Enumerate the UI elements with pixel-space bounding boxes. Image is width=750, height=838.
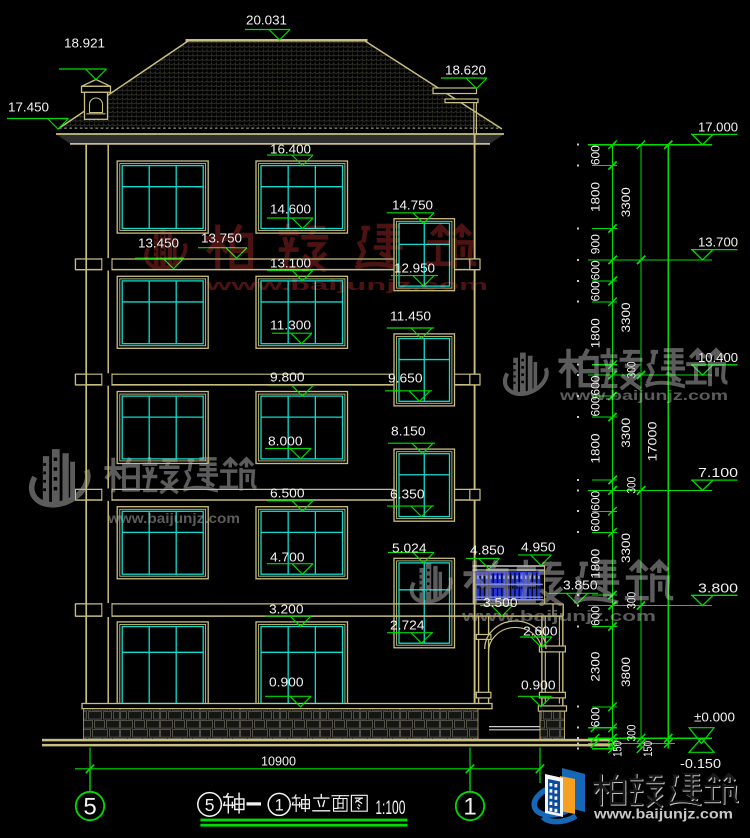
svg-text:5: 5	[205, 795, 215, 815]
svg-text:3300: 3300	[621, 187, 633, 217]
svg-text:5: 5	[83, 794, 96, 821]
svg-text:600: 600	[591, 260, 603, 280]
svg-text:600: 600	[591, 707, 603, 727]
svg-text:8.000: 8.000	[268, 434, 303, 449]
svg-text:10900: 10900	[261, 754, 296, 769]
svg-text:1:100: 1:100	[375, 798, 405, 819]
svg-text:18.921: 18.921	[64, 36, 105, 51]
svg-text:4.850: 4.850	[470, 543, 505, 558]
svg-text:9.650: 9.650	[388, 371, 423, 386]
svg-text:3300: 3300	[621, 303, 633, 333]
svg-text:600: 600	[591, 491, 603, 511]
svg-text:1: 1	[463, 794, 476, 821]
svg-text:www.baijunjz.com: www.baijunjz.com	[559, 387, 728, 403]
svg-text:0.900: 0.900	[521, 678, 556, 693]
svg-text:-0.150: -0.150	[680, 756, 721, 771]
svg-text:300: 300	[627, 725, 639, 742]
svg-text:13.700: 13.700	[698, 235, 738, 250]
svg-text:3800: 3800	[621, 657, 633, 687]
svg-text:1800: 1800	[591, 433, 603, 463]
svg-text:11.300: 11.300	[270, 318, 311, 333]
svg-text:www.baijunjz.com: www.baijunjz.com	[107, 510, 240, 526]
svg-text:0.900: 0.900	[269, 675, 304, 690]
svg-text:14.750: 14.750	[392, 198, 433, 213]
svg-text:±0.000: ±0.000	[694, 710, 735, 725]
svg-text:6.500: 6.500	[270, 486, 305, 501]
svg-text:7.100: 7.100	[698, 465, 738, 480]
svg-text:3300: 3300	[621, 418, 633, 448]
svg-text:2.724: 2.724	[390, 618, 425, 633]
svg-text:13.450: 13.450	[138, 236, 179, 251]
svg-text:14.600: 14.600	[270, 202, 311, 217]
svg-text:3.200: 3.200	[269, 602, 304, 617]
svg-text:17.000: 17.000	[698, 119, 738, 134]
svg-text:www.baijunjz.com: www.baijunjz.com	[204, 278, 488, 294]
svg-text:150: 150	[643, 741, 655, 757]
svg-text:4.700: 4.700	[270, 550, 305, 565]
svg-text:17.450: 17.450	[8, 100, 49, 115]
svg-text:www.baijunjz.com: www.baijunjz.com	[461, 608, 656, 625]
svg-text:150: 150	[613, 741, 625, 757]
svg-text:8.150: 8.150	[391, 424, 426, 439]
svg-text:2300: 2300	[591, 652, 603, 682]
svg-text:17000: 17000	[648, 422, 660, 462]
svg-text:1: 1	[275, 797, 284, 815]
svg-text:www.baijunjz.com: www.baijunjz.com	[593, 807, 733, 822]
svg-text:4.950: 4.950	[521, 540, 556, 555]
svg-text:300: 300	[627, 477, 639, 494]
svg-text:1800: 1800	[591, 182, 603, 212]
svg-text:600: 600	[591, 281, 603, 301]
svg-text:16.400: 16.400	[270, 142, 311, 157]
svg-text:600: 600	[591, 145, 603, 165]
svg-text:5.024: 5.024	[392, 541, 427, 556]
svg-text:600: 600	[591, 512, 603, 532]
svg-text:900: 900	[591, 234, 603, 254]
svg-text:1800: 1800	[591, 318, 603, 348]
svg-text:6.350: 6.350	[390, 487, 425, 502]
svg-text:3300: 3300	[621, 533, 633, 563]
svg-text:3.800: 3.800	[698, 580, 738, 595]
svg-text:2.600: 2.600	[523, 624, 558, 639]
svg-text:18.620: 18.620	[445, 63, 486, 78]
svg-text:20.031: 20.031	[246, 13, 287, 28]
svg-text:9.800: 9.800	[270, 370, 305, 385]
svg-text:11.450: 11.450	[390, 309, 431, 324]
